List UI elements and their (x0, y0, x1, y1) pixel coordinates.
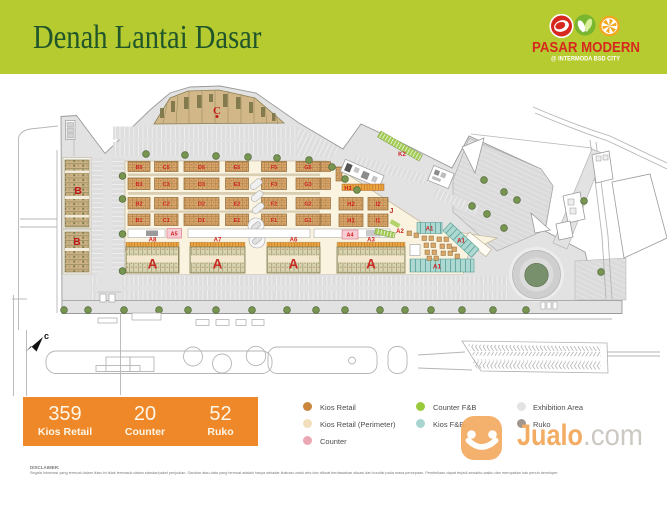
svg-text:Jualo: Jualo (517, 419, 583, 452)
svg-text:.com: .com (583, 419, 643, 452)
